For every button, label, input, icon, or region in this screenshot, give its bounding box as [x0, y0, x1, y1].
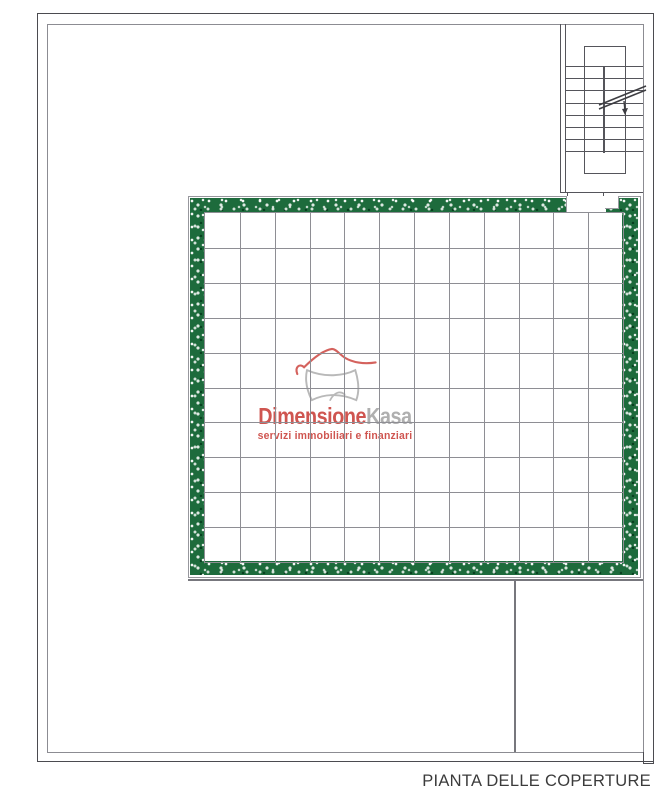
roof-plan-drawing: DimensioneKasa servizi immobiliari e fin…: [0, 0, 669, 800]
roof-tile-grid: [204, 212, 624, 563]
grid-line: [205, 388, 623, 389]
grid-line: [205, 283, 623, 284]
hedge-border-right: [622, 198, 638, 575]
grid-line: [205, 422, 623, 423]
hedge-border-left: [190, 198, 204, 575]
grid-line: [205, 527, 623, 528]
hedge-border-bottom: [190, 561, 638, 575]
grid-line: [205, 353, 623, 354]
grid-line: [205, 318, 623, 319]
grid-line: [205, 248, 623, 249]
lower-building-edge: [188, 579, 643, 581]
grid-line: [205, 457, 623, 458]
stair-bottom-line: [560, 192, 643, 193]
stair-break-line-icon: [595, 80, 651, 118]
stair-landing-step: [605, 196, 619, 209]
grid-line: [205, 492, 623, 493]
lower-building-wall: [514, 579, 516, 752]
stair-landing-gap: [566, 196, 606, 212]
right-wall-extension: [643, 752, 654, 764]
plan-title: PIANTA DELLE COPERTURE: [422, 772, 651, 791]
